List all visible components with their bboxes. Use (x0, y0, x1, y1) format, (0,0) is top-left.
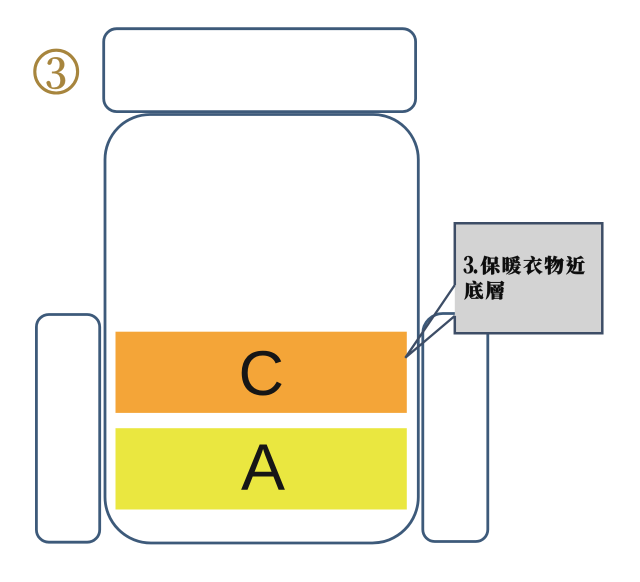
svg-text:C: C (239, 339, 285, 409)
svg-text:A: A (241, 430, 285, 504)
